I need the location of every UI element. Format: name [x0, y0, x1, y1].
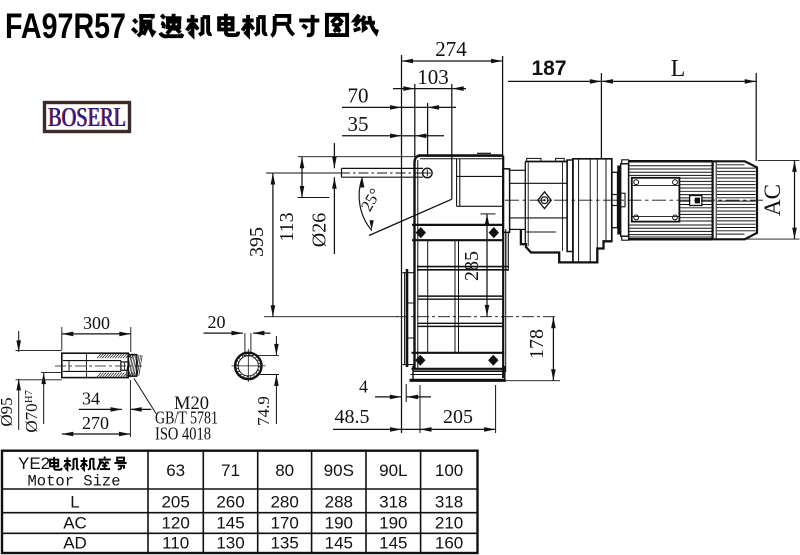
svg-text:178: 178	[526, 329, 548, 359]
svg-text:AC: AC	[63, 514, 87, 533]
svg-text:145: 145	[216, 514, 244, 533]
svg-text:190: 190	[379, 514, 407, 533]
svg-text:35: 35	[348, 112, 369, 136]
svg-text:110: 110	[162, 534, 189, 553]
svg-text:318: 318	[379, 493, 407, 512]
svg-text:145: 145	[325, 534, 353, 553]
svg-text:H7: H7	[24, 390, 35, 403]
svg-text:260: 260	[216, 493, 244, 512]
svg-text:FA97R57: FA97R57	[5, 7, 126, 46]
svg-text:160: 160	[435, 534, 463, 553]
svg-text:130: 130	[216, 534, 244, 553]
svg-text:318: 318	[435, 493, 463, 512]
svg-text:4: 4	[359, 377, 368, 397]
svg-text:63: 63	[166, 461, 185, 480]
svg-text:210: 210	[435, 514, 463, 533]
svg-text:288: 288	[325, 493, 353, 512]
svg-text:113: 113	[276, 212, 298, 241]
svg-text:285: 285	[461, 251, 483, 281]
svg-text:80: 80	[275, 461, 294, 480]
svg-text:120: 120	[161, 514, 189, 533]
svg-text:205: 205	[443, 406, 473, 428]
svg-text:BOSERL: BOSERL	[49, 102, 127, 132]
svg-text:90L: 90L	[379, 461, 407, 480]
svg-text:170: 170	[270, 514, 298, 533]
svg-text:AC: AC	[760, 184, 785, 216]
svg-text:74.9: 74.9	[254, 396, 273, 426]
svg-text:Ø70: Ø70	[22, 403, 41, 432]
svg-text:48.5: 48.5	[335, 406, 370, 428]
svg-text:34: 34	[82, 389, 100, 409]
svg-text:Ø26: Ø26	[309, 213, 331, 247]
svg-text:205: 205	[161, 493, 189, 512]
svg-text:190: 190	[325, 514, 353, 533]
svg-text:70: 70	[348, 84, 369, 108]
svg-text:103: 103	[417, 65, 449, 89]
svg-text:20: 20	[208, 312, 226, 332]
svg-text:ISO 4018: ISO 4018	[155, 424, 211, 444]
svg-text:270: 270	[82, 413, 109, 433]
svg-text:YE2: YE2	[18, 454, 50, 473]
svg-text:L: L	[70, 493, 79, 512]
svg-text:280: 280	[270, 493, 298, 512]
svg-text:145: 145	[379, 534, 407, 553]
svg-text:100: 100	[435, 461, 463, 480]
svg-text:135: 135	[270, 534, 298, 553]
svg-text:71: 71	[221, 461, 240, 480]
svg-text:L: L	[671, 56, 686, 82]
svg-text:Motor Size: Motor Size	[27, 473, 120, 491]
svg-text:300: 300	[83, 313, 110, 333]
svg-text:274: 274	[435, 37, 467, 61]
svg-text:AD: AD	[63, 534, 87, 553]
svg-text:Ø95: Ø95	[0, 397, 16, 426]
svg-text:395: 395	[246, 227, 268, 257]
svg-text:187: 187	[531, 57, 566, 80]
svg-text:90S: 90S	[324, 461, 354, 480]
